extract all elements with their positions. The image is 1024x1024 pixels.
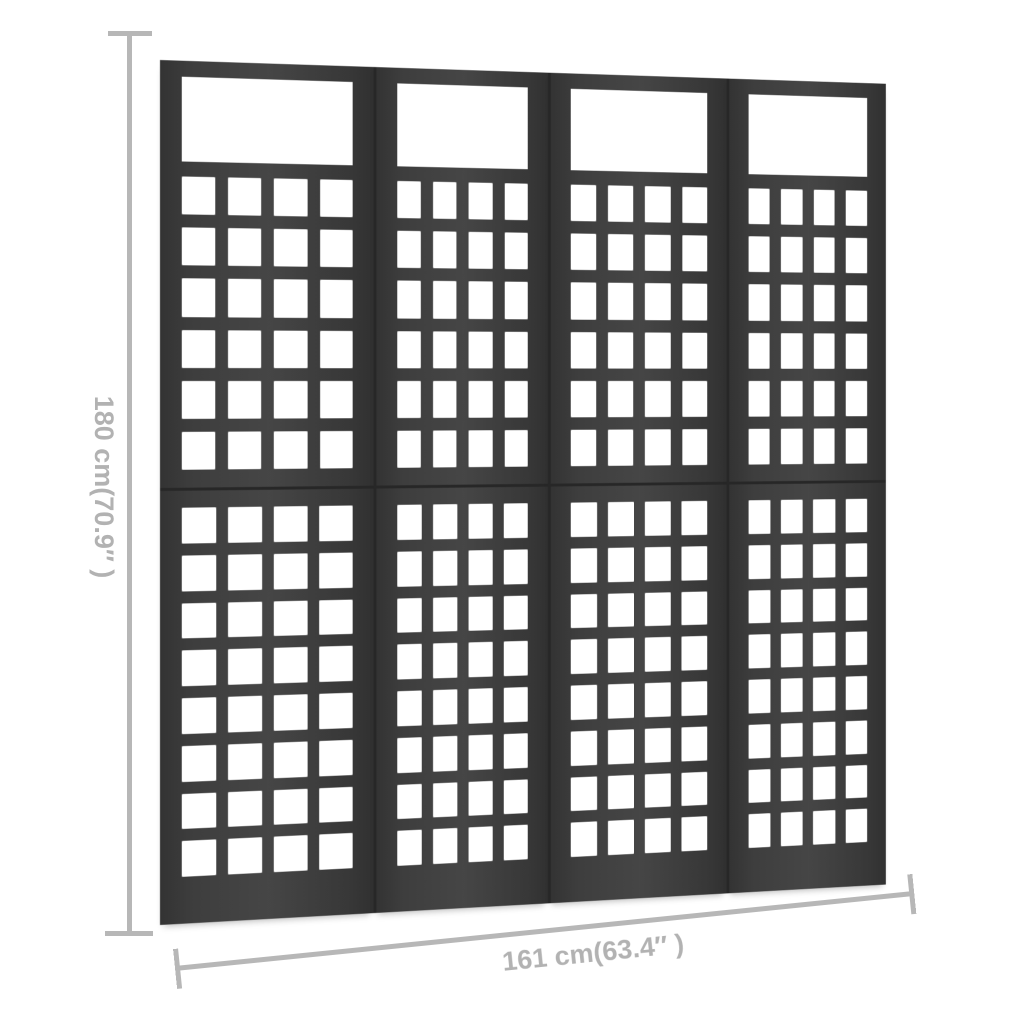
trellis-cell xyxy=(748,381,769,417)
trellis-cell xyxy=(274,330,307,368)
trellis-cell xyxy=(433,597,457,632)
trellis-cell xyxy=(397,737,422,773)
trellis-cell xyxy=(182,381,216,419)
trellis-cell xyxy=(608,547,634,582)
trellis-cell xyxy=(319,693,352,729)
trellis-cell xyxy=(433,782,457,818)
trellis-cell xyxy=(645,186,670,223)
trellis-cell xyxy=(228,279,261,317)
trellis-cell xyxy=(571,548,597,583)
trellis-cell xyxy=(320,381,353,419)
trellis-cell xyxy=(781,237,802,273)
trellis-cell xyxy=(504,733,528,768)
trellis-cell xyxy=(319,833,352,870)
trellis-cell xyxy=(814,190,835,226)
height-dimension-cap-top xyxy=(108,31,152,36)
trellis-cell xyxy=(397,281,421,318)
trellis-cell xyxy=(182,507,216,543)
trellis-cell xyxy=(320,179,353,217)
trellis-cell xyxy=(814,237,835,273)
trellis-cell xyxy=(748,634,770,668)
trellis-cell xyxy=(645,332,670,368)
trellis-cell xyxy=(274,229,307,267)
trellis-cell xyxy=(228,381,261,419)
panel-mid-rail-seam xyxy=(160,485,373,490)
trellis-cell xyxy=(397,690,422,726)
trellis-cell xyxy=(781,500,803,534)
trellis-cell xyxy=(781,812,803,847)
trellis-cell xyxy=(469,182,493,219)
trellis-cell xyxy=(433,828,457,864)
trellis-cell xyxy=(814,428,835,464)
trellis-cell xyxy=(608,684,634,719)
trellis-cell xyxy=(571,381,597,418)
trellis-cell xyxy=(814,285,835,321)
trellis-cell xyxy=(397,430,421,467)
trellis-cell xyxy=(319,786,352,823)
trellis-cell xyxy=(781,633,803,667)
trellis-cell xyxy=(469,430,493,467)
panel-upper-grid xyxy=(748,188,867,464)
trellis-cell xyxy=(228,554,262,590)
trellis-cell xyxy=(571,234,597,271)
trellis-cell xyxy=(228,177,261,215)
trellis-cell xyxy=(320,280,353,318)
trellis-cell xyxy=(846,333,867,369)
trellis-cell xyxy=(781,544,803,578)
trellis-cell xyxy=(813,544,835,578)
trellis-cell xyxy=(228,790,262,827)
panel-mid-rail-seam xyxy=(376,483,548,488)
trellis-cell xyxy=(274,280,307,318)
trellis-cell xyxy=(228,601,262,637)
trellis-cell xyxy=(813,499,835,533)
trellis-cell xyxy=(781,381,802,417)
panel-mid-rail xyxy=(729,463,886,500)
trellis-cell xyxy=(397,505,422,540)
trellis-cell xyxy=(813,633,835,667)
trellis-cell xyxy=(645,501,671,535)
trellis-cell xyxy=(748,590,770,624)
trellis-cell xyxy=(182,650,216,687)
height-dimension-label: 180 cm(70.9″ ) xyxy=(84,337,124,637)
trellis-cell xyxy=(504,779,528,815)
trellis-cell xyxy=(397,598,422,633)
trellis-cell xyxy=(781,767,803,801)
trellis-cell xyxy=(748,545,770,579)
trellis-cell xyxy=(645,381,670,417)
panel-top-window xyxy=(182,77,353,166)
trellis-panel xyxy=(160,60,373,925)
trellis-cell xyxy=(645,547,671,581)
trellis-cell xyxy=(608,185,633,222)
trellis-cell xyxy=(182,697,216,734)
trellis-cell xyxy=(571,185,597,222)
trellis-cell xyxy=(814,333,835,369)
trellis-cell xyxy=(748,500,770,534)
width-dimension-cap-left xyxy=(173,949,182,989)
panel-lower-grid xyxy=(182,505,353,876)
trellis-room-divider xyxy=(160,60,886,925)
trellis-panel xyxy=(548,73,726,904)
trellis-cell xyxy=(319,646,352,682)
trellis-cell xyxy=(608,820,634,855)
trellis-cell xyxy=(748,429,769,465)
trellis-cell xyxy=(504,687,528,722)
trellis-cell xyxy=(182,555,216,591)
trellis-cell xyxy=(274,506,308,542)
trellis-cell xyxy=(274,835,308,872)
trellis-cell xyxy=(645,773,671,808)
trellis-cell xyxy=(274,647,308,683)
trellis-cell xyxy=(748,236,769,272)
trellis-cell xyxy=(645,429,670,465)
product-dimension-image: 180 cm(70.9″ ) 161 cm(63.4″ ) xyxy=(0,0,1024,1024)
trellis-cell xyxy=(845,543,867,577)
trellis-cell xyxy=(645,637,671,672)
height-dimension-cap-bottom xyxy=(105,931,153,936)
trellis-cell xyxy=(397,551,422,586)
trellis-cell xyxy=(645,592,671,627)
trellis-cell xyxy=(319,505,352,541)
trellis-cell xyxy=(228,648,262,684)
trellis-cell xyxy=(608,593,634,628)
trellis-cell xyxy=(682,235,707,271)
trellis-cell xyxy=(469,688,493,723)
trellis-cell xyxy=(681,681,707,716)
trellis-cell xyxy=(469,282,493,319)
trellis-cell xyxy=(571,685,597,720)
panel-upper-grid xyxy=(397,181,528,468)
trellis-cell xyxy=(846,428,867,464)
trellis-cell xyxy=(182,432,216,470)
trellis-cell xyxy=(433,550,457,585)
trellis-cell xyxy=(469,780,493,816)
trellis-cell xyxy=(228,330,261,368)
trellis-cell xyxy=(397,381,421,418)
trellis-cell xyxy=(433,643,457,678)
panel-mid-rail xyxy=(376,466,548,505)
trellis-cell xyxy=(781,723,803,757)
panel-lower-grid xyxy=(397,503,528,866)
trellis-cell xyxy=(469,642,493,677)
trellis-cell xyxy=(433,504,457,539)
panel-lower-grid xyxy=(571,501,707,857)
trellis-cell xyxy=(320,230,353,268)
trellis-cell xyxy=(319,740,352,776)
trellis-cell xyxy=(781,678,803,712)
trellis-panel xyxy=(373,67,548,913)
trellis-cell xyxy=(608,729,634,764)
trellis-cell xyxy=(682,284,707,320)
trellis-cell xyxy=(274,600,308,636)
trellis-cell xyxy=(846,190,867,226)
trellis-cell xyxy=(608,283,633,320)
trellis-cell xyxy=(608,774,634,809)
trellis-cell xyxy=(781,189,802,225)
trellis-cell xyxy=(571,502,597,537)
trellis-cell xyxy=(608,502,634,536)
trellis-cell xyxy=(571,822,597,857)
trellis-cell xyxy=(781,333,802,369)
trellis-cell xyxy=(505,183,528,220)
trellis-cell xyxy=(813,588,835,622)
trellis-cell xyxy=(846,285,867,321)
trellis-cell xyxy=(397,644,422,680)
trellis-cell xyxy=(845,499,867,533)
trellis-cell xyxy=(681,816,707,851)
trellis-cell xyxy=(681,591,707,625)
trellis-cell xyxy=(469,550,493,585)
trellis-cell xyxy=(813,721,835,755)
panel-mid-rail xyxy=(160,468,373,508)
trellis-cell xyxy=(748,724,770,758)
height-dimension-line xyxy=(127,33,132,935)
trellis-cell xyxy=(645,283,670,319)
trellis-cell xyxy=(845,720,867,754)
trellis-cell xyxy=(571,283,597,320)
trellis-cell xyxy=(748,284,769,320)
trellis-cell xyxy=(433,231,457,268)
trellis-cell xyxy=(433,689,457,725)
trellis-cell xyxy=(228,431,261,469)
trellis-cell xyxy=(504,825,528,861)
trellis-cell xyxy=(319,552,352,588)
trellis-cell xyxy=(845,587,867,621)
trellis-cell xyxy=(228,507,262,543)
trellis-cell xyxy=(813,677,835,711)
trellis-cell xyxy=(504,641,528,676)
trellis-cell xyxy=(571,594,597,629)
trellis-cell xyxy=(274,431,307,469)
trellis-cell xyxy=(505,233,528,270)
trellis-cell xyxy=(645,728,671,763)
trellis-cell xyxy=(274,553,308,589)
trellis-cell xyxy=(681,771,707,806)
trellis-cell xyxy=(845,765,867,799)
trellis-cell xyxy=(182,330,216,368)
trellis-cell xyxy=(433,281,457,318)
trellis-cell xyxy=(397,830,422,866)
trellis-cell xyxy=(682,381,707,417)
trellis-cell xyxy=(608,638,634,673)
trellis-cell xyxy=(813,810,835,844)
trellis-cell xyxy=(274,694,308,730)
trellis-cell xyxy=(505,381,528,418)
trellis-cell xyxy=(469,596,493,631)
panel-top-window xyxy=(397,83,528,169)
trellis-cell xyxy=(781,285,802,321)
trellis-cell xyxy=(748,679,770,713)
trellis-cell xyxy=(274,381,307,419)
trellis-cell xyxy=(433,182,457,219)
trellis-cell xyxy=(182,792,216,829)
trellis-cell xyxy=(228,228,261,266)
trellis-cell xyxy=(748,333,769,369)
trellis-cell xyxy=(320,431,353,469)
trellis-cell xyxy=(469,827,493,863)
trellis-cell xyxy=(504,503,528,538)
trellis-cell xyxy=(681,636,707,671)
trellis-cell xyxy=(182,227,216,265)
panel-lower-grid xyxy=(748,499,867,848)
trellis-cell xyxy=(397,783,422,819)
panel-mid-rail-seam xyxy=(729,480,886,485)
trellis-cell xyxy=(645,682,671,717)
trellis-cell xyxy=(608,234,633,271)
trellis-cell xyxy=(505,331,528,368)
trellis-cell xyxy=(505,282,528,319)
trellis-cell xyxy=(469,504,493,539)
trellis-cell xyxy=(608,332,633,368)
trellis-cell xyxy=(814,381,835,417)
trellis-cell xyxy=(469,734,493,770)
trellis-cell xyxy=(182,602,216,638)
trellis-cell xyxy=(748,769,770,804)
panel-top-window xyxy=(571,89,707,173)
panel-mid-rail xyxy=(551,465,726,503)
trellis-cell xyxy=(397,331,421,368)
trellis-cell xyxy=(608,381,633,417)
trellis-cell xyxy=(274,741,308,778)
trellis-cell xyxy=(681,546,707,580)
trellis-cell xyxy=(504,549,528,584)
trellis-cell xyxy=(433,331,457,368)
trellis-cell xyxy=(608,429,633,466)
trellis-cell xyxy=(571,430,597,467)
trellis-cell xyxy=(433,430,457,467)
trellis-cell xyxy=(748,813,770,848)
trellis-cell xyxy=(645,818,671,853)
trellis-cell xyxy=(571,639,597,674)
trellis-cell xyxy=(319,599,352,635)
trellis-cell xyxy=(182,745,216,782)
trellis-cell xyxy=(433,381,457,418)
trellis-cell xyxy=(505,430,528,467)
trellis-cell xyxy=(748,188,769,224)
trellis-cell xyxy=(228,743,262,780)
trellis-cell xyxy=(469,331,493,368)
trellis-cell xyxy=(845,809,867,843)
trellis-cell xyxy=(571,776,597,811)
trellis-cell xyxy=(781,428,802,464)
trellis-cell xyxy=(681,501,707,535)
trellis-cell xyxy=(781,589,803,623)
trellis-cell xyxy=(645,235,670,272)
trellis-cell xyxy=(469,381,493,418)
trellis-panel xyxy=(726,79,886,894)
trellis-cell xyxy=(320,330,353,368)
trellis-cell xyxy=(846,381,867,416)
trellis-cell xyxy=(681,726,707,761)
trellis-cell xyxy=(846,238,867,274)
trellis-cell xyxy=(504,595,528,630)
trellis-cell xyxy=(274,788,308,825)
trellis-cell xyxy=(182,176,216,215)
trellis-cell xyxy=(182,840,216,877)
trellis-cell xyxy=(571,332,597,369)
panel-top-window xyxy=(748,94,867,177)
trellis-cell xyxy=(228,837,262,874)
panel-upper-grid xyxy=(182,176,353,469)
trellis-cell xyxy=(845,676,867,710)
trellis-cell xyxy=(397,231,421,269)
panel-mid-rail-seam xyxy=(551,481,726,486)
trellis-cell xyxy=(182,279,216,317)
trellis-cell xyxy=(813,766,835,800)
panel-upper-grid xyxy=(571,185,707,467)
trellis-cell xyxy=(469,232,493,269)
trellis-cell xyxy=(228,696,262,733)
trellis-cell xyxy=(433,736,457,772)
trellis-cell xyxy=(274,178,307,216)
trellis-cell xyxy=(571,730,597,765)
trellis-cell xyxy=(397,181,421,219)
trellis-cell xyxy=(682,187,707,224)
trellis-cell xyxy=(682,332,707,368)
trellis-cell xyxy=(682,429,707,465)
trellis-cell xyxy=(845,632,867,666)
